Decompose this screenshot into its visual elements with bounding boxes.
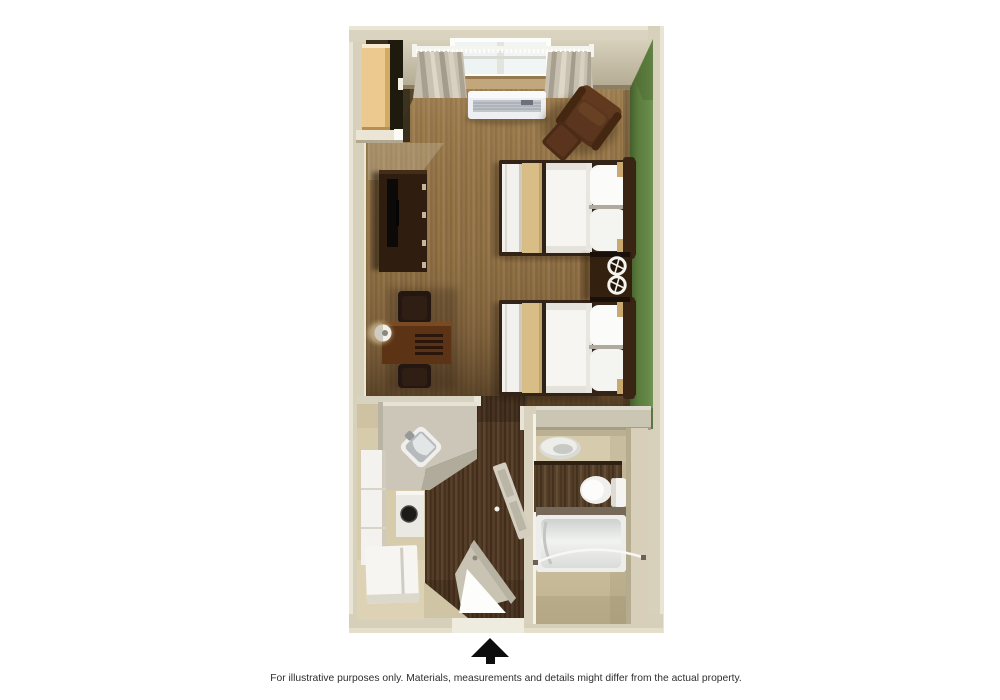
svg-text:For illustrative purposes only: For illustrative purposes only. Material… bbox=[270, 673, 742, 684]
